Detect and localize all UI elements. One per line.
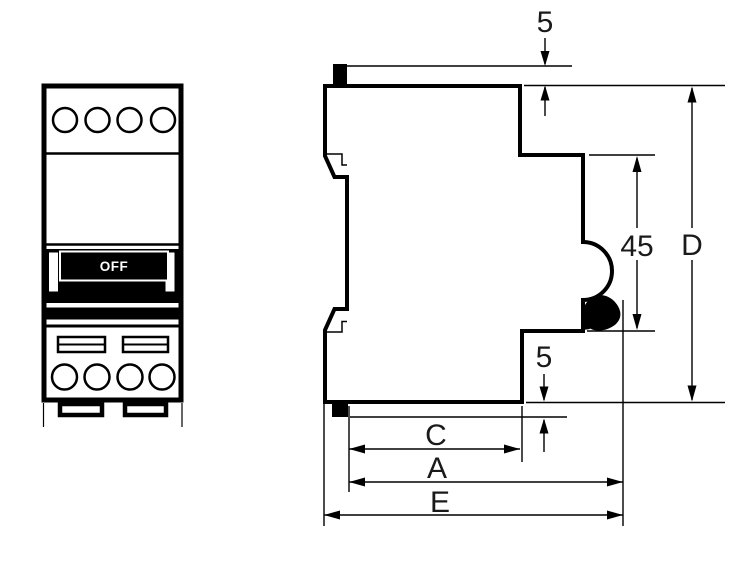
dim-label-top-5: 5 bbox=[537, 6, 554, 39]
dim-label-a: A bbox=[427, 452, 447, 485]
dim-label-d: D bbox=[681, 229, 703, 262]
dim-label-bottom-5: 5 bbox=[536, 341, 553, 374]
front-view bbox=[44, 86, 183, 427]
front-band-1 bbox=[45, 308, 181, 320]
breaker-dimension-drawing: OFF 5 45 D 5 C A E bbox=[0, 0, 745, 573]
side-top-tab bbox=[333, 64, 347, 85]
dim-top-5 bbox=[347, 38, 725, 116]
front-bottom-tab-left bbox=[60, 404, 102, 415]
dim-a bbox=[349, 300, 623, 526]
dim-label-45: 45 bbox=[620, 230, 653, 263]
dim-bottom-5 bbox=[350, 374, 567, 452]
toggle-off-label: OFF bbox=[100, 259, 129, 274]
front-band-2 bbox=[45, 325, 181, 328]
dimension-linework bbox=[324, 38, 725, 526]
dim-label-e: E bbox=[430, 486, 450, 519]
toggle-slot-left bbox=[49, 253, 58, 292]
side-bottom-tab bbox=[332, 402, 348, 417]
dim-label-c: C bbox=[425, 419, 447, 452]
front-bottom-tab-right bbox=[125, 404, 166, 415]
side-profile-outline bbox=[325, 86, 612, 402]
side-view bbox=[325, 64, 620, 417]
dim-e bbox=[324, 404, 623, 526]
drawing-svg: OFF 5 45 D 5 C A E bbox=[0, 0, 745, 573]
